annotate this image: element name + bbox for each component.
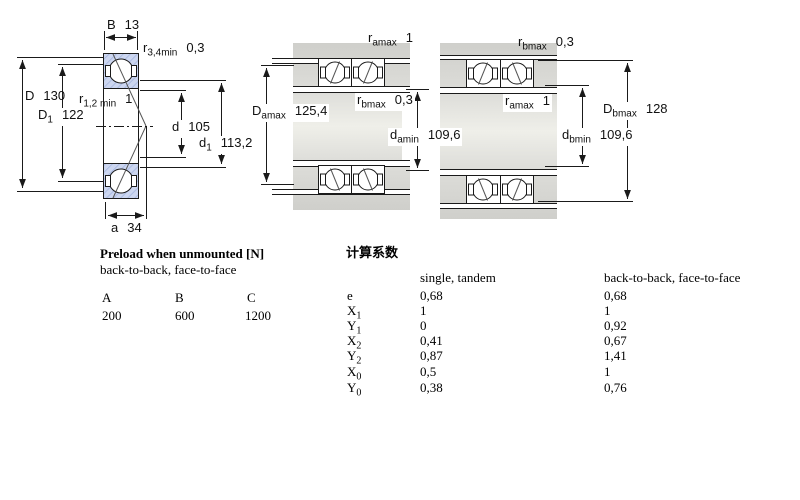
dim-label-D1: D1122 (36, 108, 86, 126)
dim-label-rbmax-right: rbmax0,3 (518, 35, 574, 53)
single-bearing-section (96, 54, 153, 199)
dim-label-d1: d1113,2 (197, 136, 254, 154)
preload-value-a: 200 (102, 308, 122, 323)
preload-col-b: B (175, 290, 184, 305)
factor-row-paired: 1 (604, 303, 611, 318)
factor-row-single: 0,87 (420, 348, 443, 363)
dim-label-a: a34 (111, 221, 142, 239)
factor-row-single: 0,41 (420, 333, 443, 348)
factor-row-paired: 0,76 (604, 380, 627, 395)
factor-row-paired: 1,41 (604, 348, 627, 363)
factors-col-paired: back-to-back, face-to-face (604, 270, 740, 285)
factor-row-paired: 1 (604, 364, 611, 379)
dim-label-D: D130 (25, 89, 65, 107)
factor-row-single: 0 (420, 318, 427, 333)
factor-row-paired: 0,92 (604, 318, 627, 333)
factor-row-single: 0,68 (420, 288, 443, 303)
dim-label-rbmax-mid: rbmax0,3 (355, 93, 415, 111)
preload-subtitle: back-to-back, face-to-face (100, 262, 236, 277)
factor-row-single: 1 (420, 303, 427, 318)
factors-col-single: single, tandem (420, 270, 496, 285)
factor-row-single: 0,38 (420, 380, 443, 395)
dim-label-r34min: r3,4min0,3 (143, 41, 204, 59)
preload-value-b: 600 (175, 308, 195, 323)
factor-row-paired: 0,67 (604, 333, 627, 348)
preload-title: Preload when unmounted [N] (100, 246, 264, 261)
dim-label-ramax-right: ramax1 (503, 94, 552, 112)
dim-label-Damax: Damax125,4 (250, 104, 329, 122)
factor-row-single: 0,5 (420, 364, 436, 379)
preload-col-a: A (102, 290, 111, 305)
tandem-arrangement-section (261, 43, 445, 210)
dim-label-B: B13 (107, 18, 139, 36)
preload-value-c: 1200 (245, 308, 271, 323)
factors-title: 计算系数 (346, 246, 398, 261)
dim-label-damin: damin109,6 (388, 128, 462, 146)
factor-row-label: Y0 (347, 380, 361, 401)
dim-label-r12min: r1,2 min1 (79, 92, 132, 110)
preload-col-c: C (247, 290, 256, 305)
factor-row-paired: 0,68 (604, 288, 627, 303)
dim-label-Dbmax: Dbmax128 (601, 102, 670, 120)
dim-label-dbmin: dbmin109,6 (560, 128, 634, 146)
dim-label-ramax-mid: ramax1 (368, 31, 413, 49)
bearing-datasheet-page: B13 r3,4min0,3 r1,2 min1 D130 D1122 d105… (0, 0, 800, 500)
